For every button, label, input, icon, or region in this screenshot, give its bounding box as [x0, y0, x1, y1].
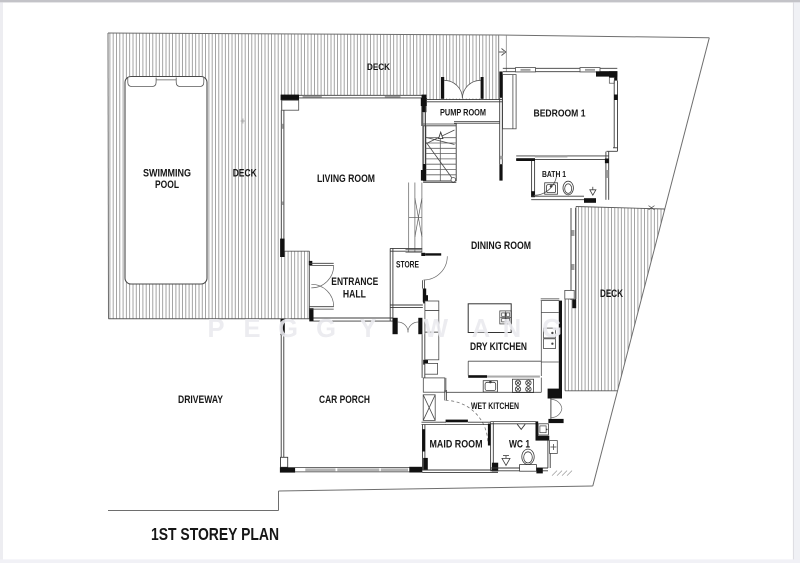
- svg-text:WC 1: WC 1: [509, 439, 530, 451]
- svg-text:E: E: [243, 315, 260, 343]
- svg-text:G: G: [316, 315, 336, 343]
- svg-text:DECK: DECK: [233, 168, 257, 180]
- svg-text:ENTRANCE: ENTRANCE: [331, 276, 378, 288]
- svg-text:SWIMMING: SWIMMING: [143, 168, 191, 180]
- svg-text:POOL: POOL: [155, 179, 179, 191]
- svg-text:PUMP ROOM: PUMP ROOM: [440, 107, 486, 117]
- svg-text:G: G: [278, 315, 298, 343]
- svg-text:CAR PORCH: CAR PORCH: [319, 394, 370, 406]
- svg-text:Y: Y: [359, 315, 376, 343]
- svg-text:BEDROOM 1: BEDROOM 1: [534, 109, 586, 120]
- svg-text:MAID ROOM: MAID ROOM: [430, 439, 483, 451]
- svg-text:DRIVEWAY: DRIVEWAY: [178, 394, 223, 406]
- svg-text:WET KITCHEN: WET KITCHEN: [471, 401, 519, 411]
- svg-text:1ST STOREY PLAN: 1ST STOREY PLAN: [151, 524, 279, 544]
- svg-text:DRY KITCHEN: DRY KITCHEN: [470, 341, 527, 353]
- svg-text:BATH 1: BATH 1: [542, 169, 566, 179]
- svg-text:W: W: [424, 315, 449, 343]
- svg-text:DECK: DECK: [367, 62, 391, 72]
- svg-text:P: P: [207, 315, 224, 343]
- svg-text:LIVING ROOM: LIVING ROOM: [317, 173, 375, 185]
- svg-text:DINING ROOM: DINING ROOM: [471, 240, 531, 252]
- svg-text:STORE: STORE: [396, 259, 419, 269]
- svg-text:HALL: HALL: [343, 288, 366, 300]
- svg-text:DECK: DECK: [600, 288, 623, 300]
- svg-text:G: G: [542, 315, 562, 343]
- svg-text:A: A: [472, 315, 490, 343]
- svg-text:N: N: [503, 315, 521, 343]
